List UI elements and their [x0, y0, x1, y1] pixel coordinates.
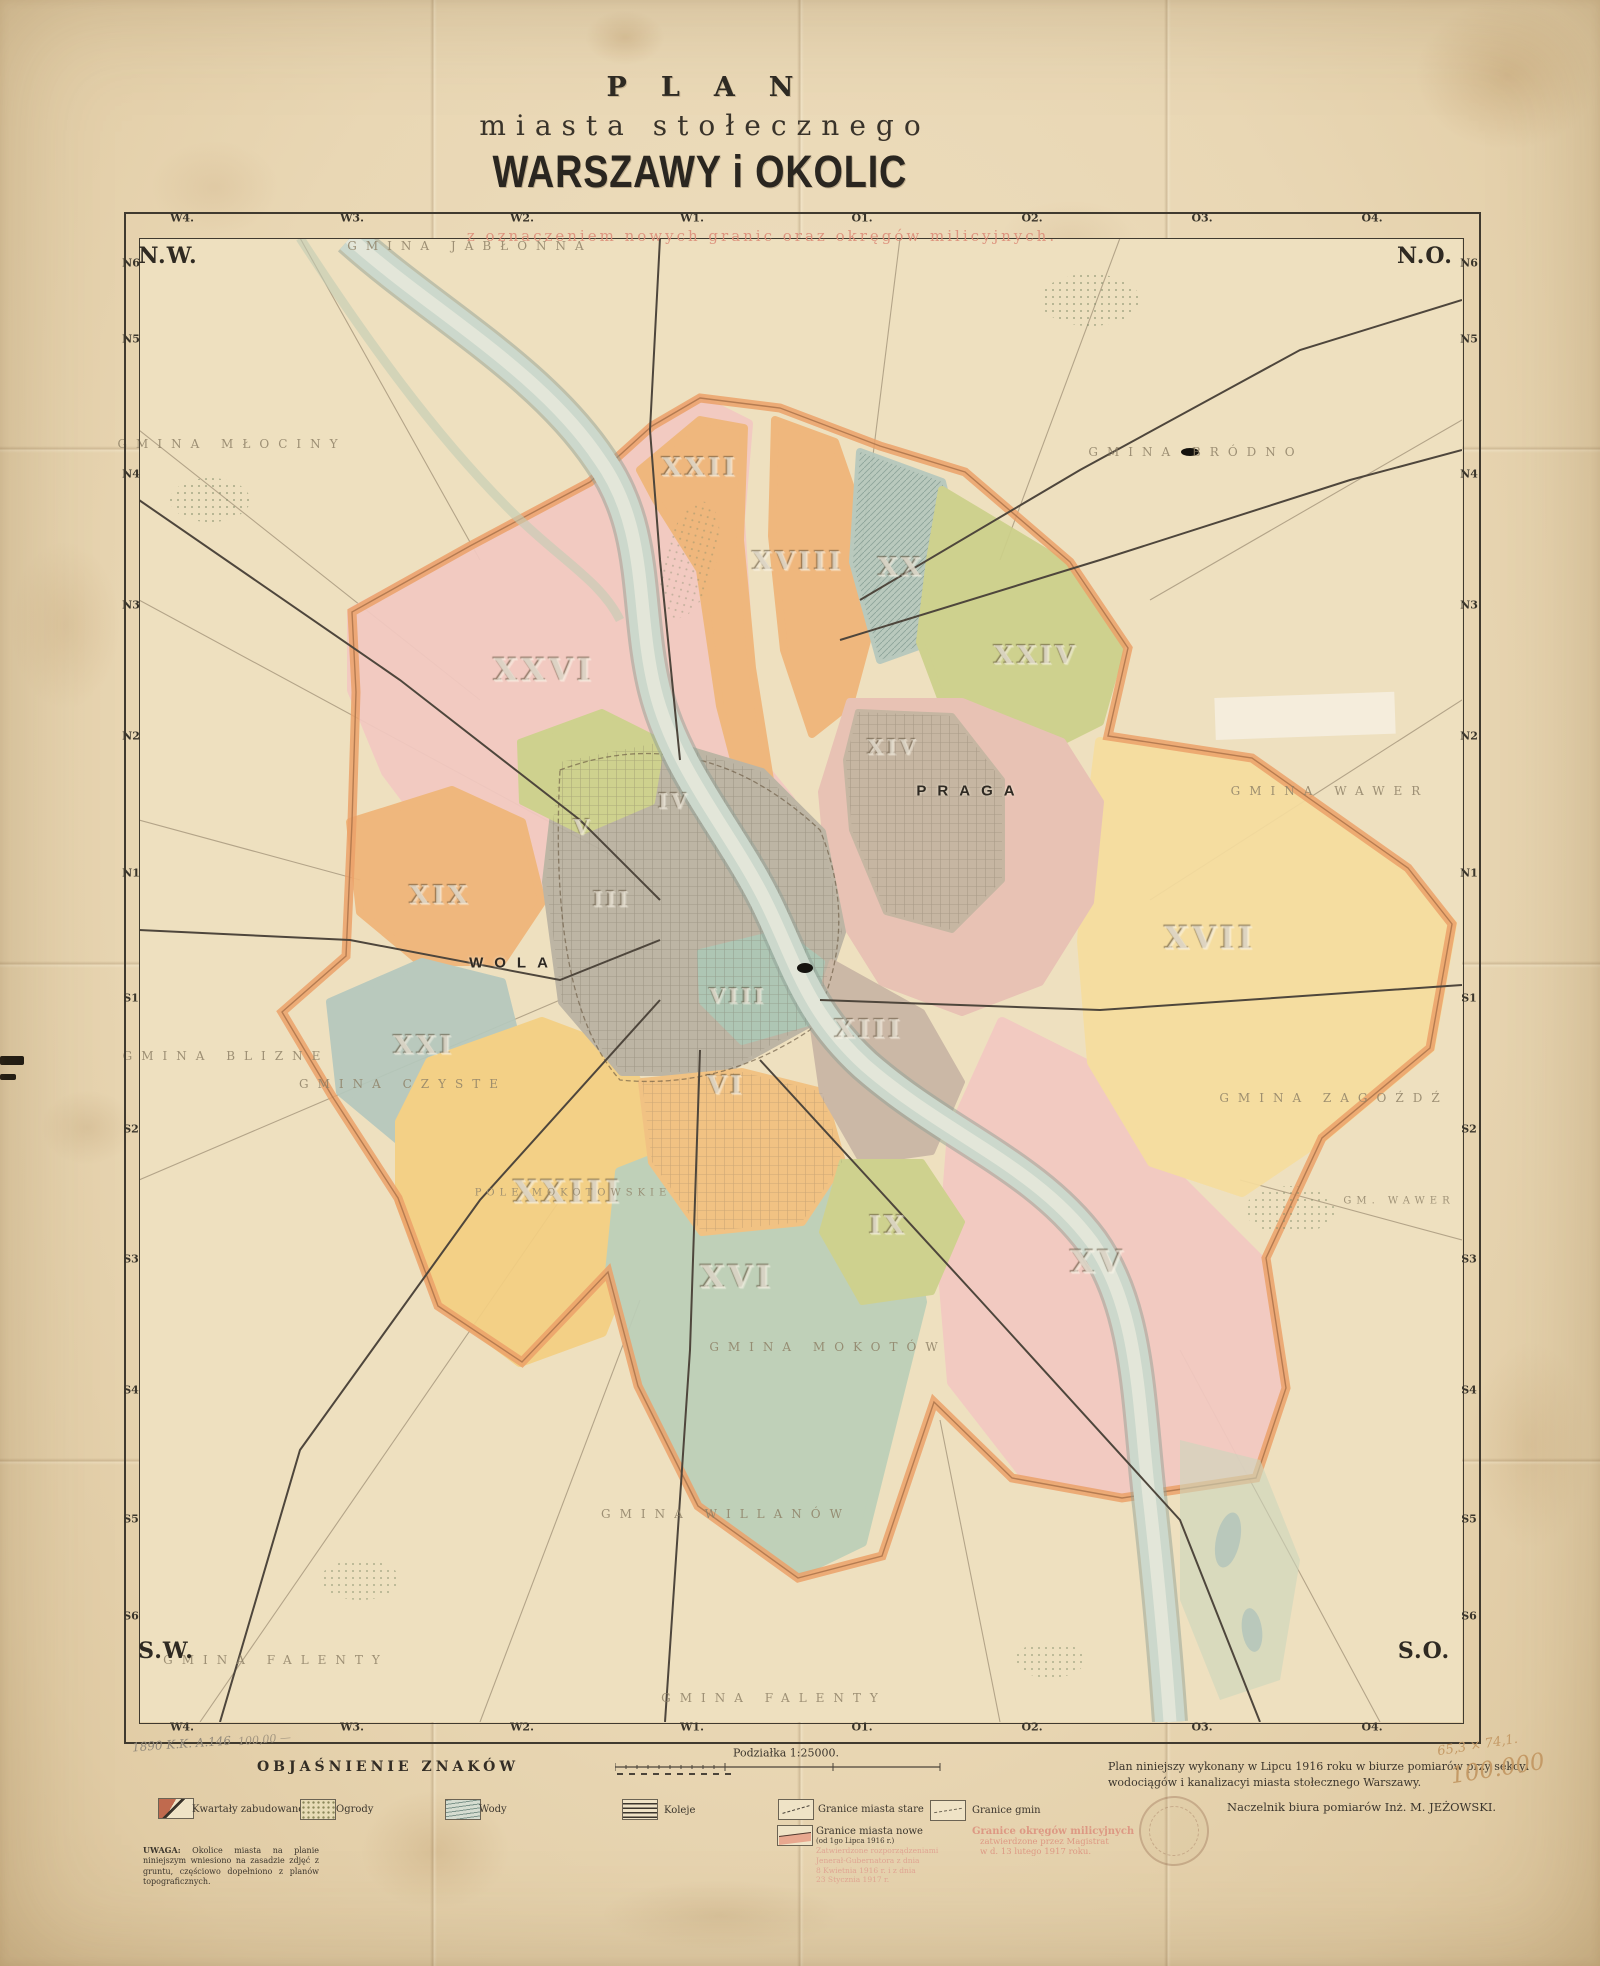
garden-symbol: [300, 1799, 336, 1820]
compass-se: S.O.: [1398, 1638, 1450, 1664]
grid-label-bottom-o2: O2.: [1021, 1721, 1042, 1734]
compass-sw: S.W.: [138, 1638, 194, 1664]
grid-label-left-n6: N6: [122, 257, 140, 270]
grid-label-right-n3: N3: [1460, 599, 1478, 612]
grid-label-left-s6: S6: [123, 1610, 139, 1623]
legend-fineprint-line: 8 Kwietnia 1916 r. i z dnia: [816, 1866, 946, 1876]
scale-label: Podziałka 1:25000.: [733, 1747, 839, 1760]
legend-label: Granice okręgów milicyjnych: [972, 1826, 1134, 1837]
compass-ne: N.O.: [1397, 243, 1453, 269]
grid-label-top-w4: W4.: [170, 212, 194, 225]
scale-bar: [615, 1762, 945, 1778]
paper-stain: [10, 540, 120, 710]
grid-label-top-w2: W2.: [510, 212, 534, 225]
ink-mark: [0, 1056, 24, 1065]
map-header: PLAN miasta stołecznego WARSZAWY i OKOLI…: [300, 72, 1100, 198]
grid-label-right-s2: S2: [1461, 1123, 1477, 1136]
legend-item-sub-granice-miasta-nowe: (od 1go Lipca 1916 r.): [816, 1837, 894, 1845]
grid-label-right-s1: S1: [1461, 992, 1477, 1005]
grid-label-top-o4: O4.: [1361, 212, 1382, 225]
legend-item-granice-miasta-nowe: Granice miasta nowe: [816, 1826, 923, 1837]
grid-label-right-n5: N5: [1460, 333, 1478, 346]
grid-label-right-n2: N2: [1460, 730, 1478, 743]
legend-fineprint: Zatwierdzone rozporządzeniamiJenerał-Gub…: [816, 1846, 946, 1885]
legend-fineprint-line: 23 Stycznia 1917 r.: [816, 1875, 946, 1885]
legend-fineprint-line: Jenerał-Gubernatora z dnia: [816, 1856, 946, 1866]
rail-symbol: [622, 1799, 658, 1820]
paper-stain: [1415, 0, 1600, 150]
ink-mark: [0, 1074, 16, 1080]
page-subtitle-1: miasta stołecznego: [300, 109, 1100, 142]
grid-label-bottom-w4: W4.: [170, 1721, 194, 1734]
legend-item-granice-okregow-milicyjnych: Granice okręgów milicyjnych zatwierdzone…: [972, 1826, 1134, 1857]
page-title-city: WARSZAWY i OKOLIC: [493, 146, 908, 198]
page-title: PLAN: [300, 72, 1100, 103]
grid-label-right-s6: S6: [1461, 1610, 1477, 1623]
grid-label-left-n4: N4: [122, 468, 140, 481]
legend-item-wody: Wody: [479, 1804, 507, 1815]
uwaga-label: UWAGA:: [143, 1845, 181, 1855]
grid-label-bottom-w3: W3.: [340, 1721, 364, 1734]
credits-line-2: wodociągów i kanalizacyi miasta stołeczn…: [1108, 1776, 1421, 1789]
new-symbol: [777, 1825, 813, 1846]
grid-label-left-s4: S4: [123, 1384, 139, 1397]
gmborder-symbol: [930, 1800, 966, 1821]
compass-nw: N.W.: [138, 243, 197, 269]
legend-item-granice-miasta-stare: Granice miasta stare: [818, 1804, 924, 1815]
legend-item-koleje: Koleje: [664, 1805, 695, 1816]
legend-item-kwarta-y-zabudowane: Kwartały zabudowane: [192, 1804, 304, 1815]
paper-stain: [600, 1880, 840, 1950]
old-symbol: [778, 1799, 814, 1820]
map-sheet: PLAN miasta stołecznego WARSZAWY i OKOLI…: [0, 0, 1600, 1966]
grid-label-left-s1: S1: [123, 992, 139, 1005]
map-frame-inner: [139, 238, 1464, 1724]
legend-item-granice-gmin: Granice gmin: [972, 1805, 1041, 1816]
legend-items: Kwartały zabudowaneOgrodyWodyKolejeGrani…: [0, 0, 1600, 21]
legend-fineprint-line: Zatwierdzone rozporządzeniami: [816, 1846, 946, 1856]
grid-label-left-s5: S5: [123, 1513, 139, 1526]
grid-label-right-n1: N1: [1460, 867, 1478, 880]
grid-label-left-n3: N3: [122, 599, 140, 612]
map-subtitle-pink: z oznaczeniem nowych granic oraz okręgów…: [467, 227, 1057, 245]
grid-label-top-w3: W3.: [340, 212, 364, 225]
grid-label-bottom-o4: O4.: [1361, 1721, 1382, 1734]
grid-label-left-s2: S2: [123, 1123, 139, 1136]
legend-heading: OBJAŚNIENIE ZNAKÓW: [257, 1759, 519, 1775]
water-symbol: [445, 1799, 481, 1820]
grid-label-right-n6: N6: [1460, 257, 1478, 270]
grid-label-top-o3: O3.: [1191, 212, 1212, 225]
grid-label-right-s4: S4: [1461, 1384, 1477, 1397]
grid-label-top-o2: O2.: [1021, 212, 1042, 225]
grid-label-right-s3: S3: [1461, 1253, 1477, 1266]
built-symbol: [158, 1798, 194, 1819]
legend-item-ogrody: Ogrody: [336, 1804, 373, 1815]
grid-label-bottom-o3: O3.: [1191, 1721, 1212, 1734]
credits-signature: Naczelnik biura pomiarów Inż. M. JEŻOWSK…: [1227, 1800, 1496, 1814]
grid-label-left-n1: N1: [122, 867, 140, 880]
paper-stain: [40, 1090, 135, 1165]
grid-label-left-s3: S3: [123, 1253, 139, 1266]
grid-label-bottom-w1: W1.: [680, 1721, 704, 1734]
legend-label: w d. 13 lutego 1917 roku.: [972, 1847, 1134, 1857]
grid-label-right-s5: S5: [1461, 1513, 1477, 1526]
grid-label-top-w1: W1.: [680, 212, 704, 225]
grid-label-right-n4: N4: [1460, 468, 1478, 481]
legend-label: zatwierdzone przez Magistrat: [972, 1837, 1134, 1847]
grid-label-left-n5: N5: [122, 333, 140, 346]
library-stamp: [1134, 1791, 1213, 1870]
grid-label-bottom-w2: W2.: [510, 1721, 534, 1734]
uwaga-note: UWAGA: Okolice miasta na planie niniejsz…: [143, 1845, 319, 1888]
paper-stain: [1470, 1340, 1590, 1550]
grid-label-bottom-o1: O1.: [851, 1721, 872, 1734]
grid-label-top-o1: O1.: [851, 212, 872, 225]
grid-label-left-n2: N2: [122, 730, 140, 743]
